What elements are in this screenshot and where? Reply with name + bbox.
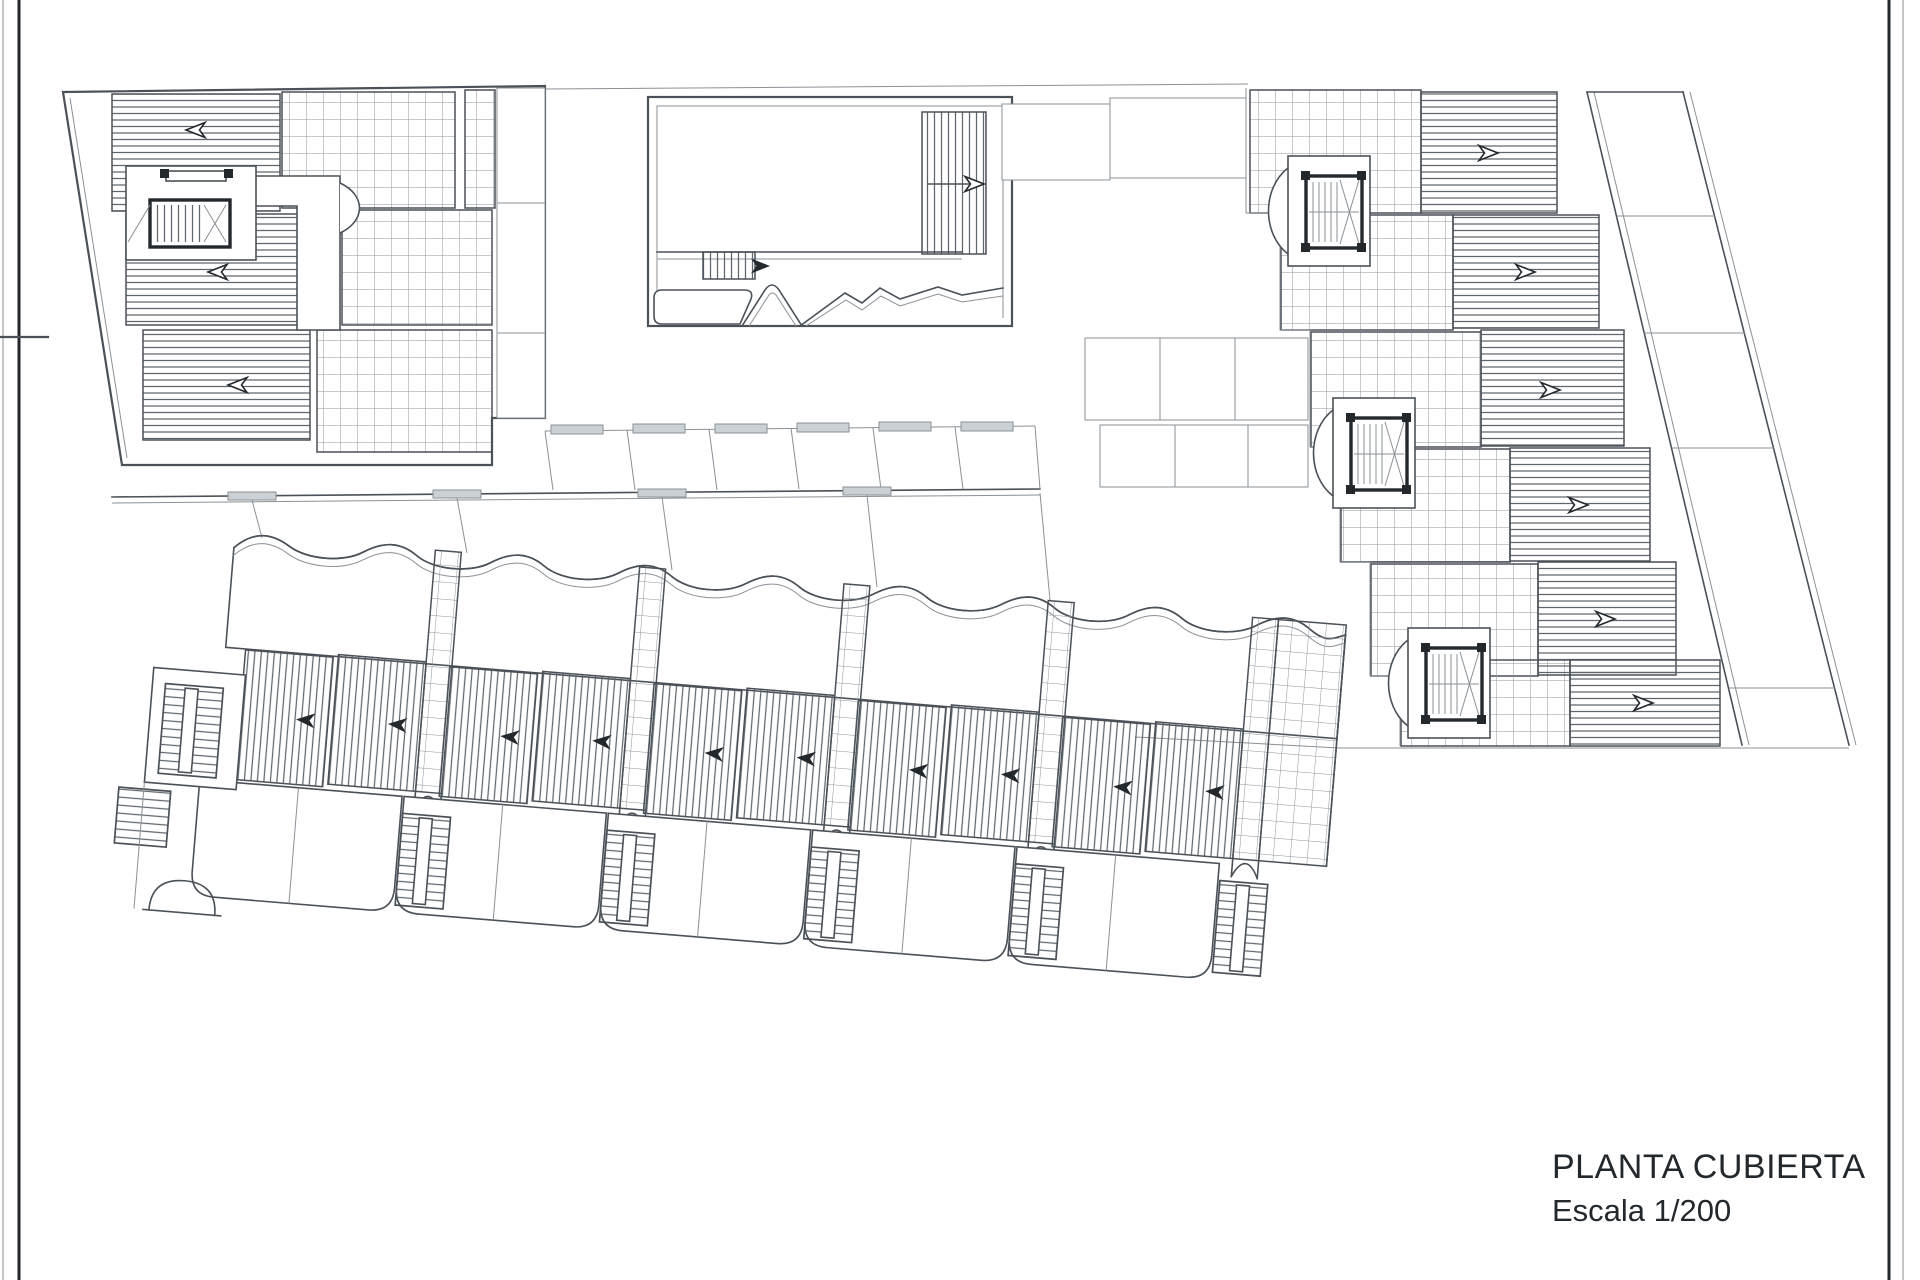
row-stair: [395, 813, 450, 909]
street-and-plots: [112, 422, 1050, 600]
stair-core: [126, 166, 256, 260]
row-stair: [599, 830, 654, 926]
drawing-title: PLANTA CUBIERTA: [1552, 1148, 1866, 1187]
stair-core: [1314, 398, 1416, 508]
stair-core: [1389, 628, 1491, 738]
row-stair: [1008, 864, 1063, 960]
drawing-sheet: PLANTA CUBIERTA Escala 1/200: [0, 0, 1920, 1280]
row-stair: [1212, 881, 1267, 977]
drawing-scale: Escala 1/200: [1552, 1193, 1866, 1229]
stair-core: [1269, 156, 1371, 266]
top-left-building: [63, 86, 545, 465]
roof-plan-drawing: [0, 0, 1920, 1280]
title-block: PLANTA CUBIERTA Escala 1/200: [1552, 1148, 1866, 1229]
townhouse-row: [109, 524, 1346, 1006]
canopy-curves: [654, 285, 1003, 326]
row-stair: [804, 847, 859, 943]
courtyard-building: [648, 97, 1012, 326]
small-stair: [703, 252, 755, 279]
